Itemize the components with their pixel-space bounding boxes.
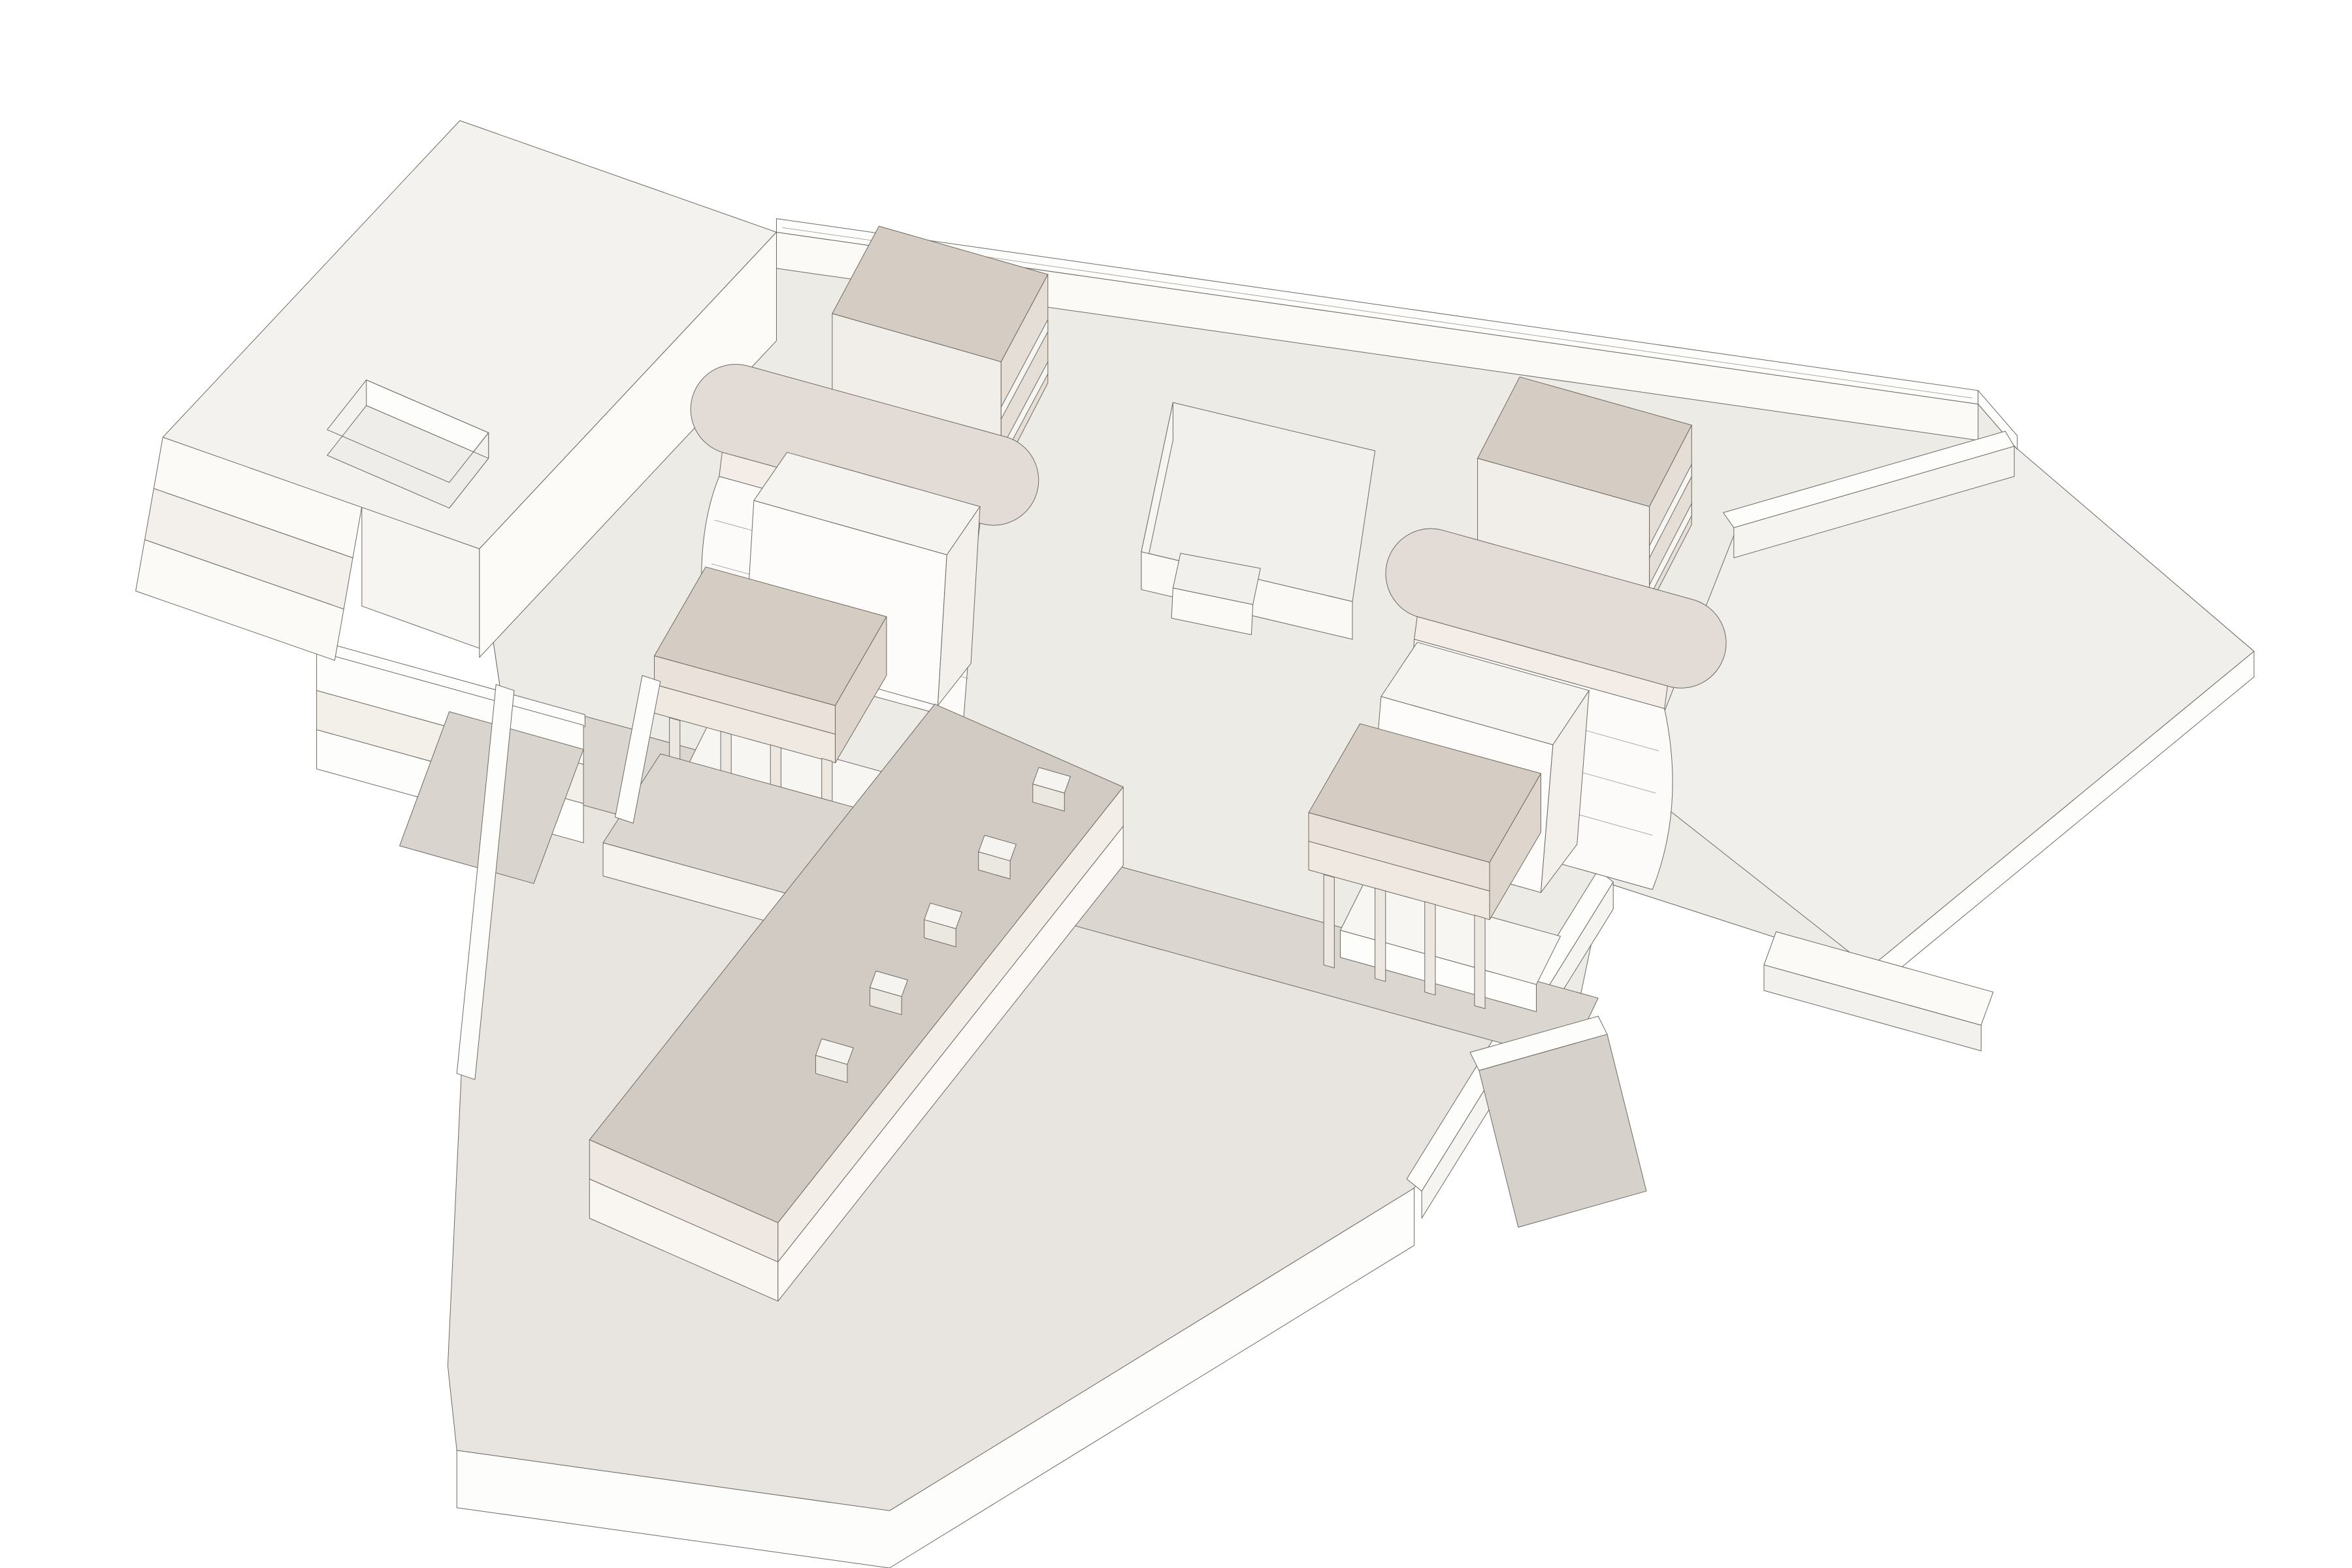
east-column-4 [1475,915,1485,1009]
site-model-drawing [0,0,2352,1568]
east-column-1 [1324,874,1334,968]
page-background [0,0,2352,1568]
ramp [1479,1034,1646,1227]
east-column-3 [1425,902,1435,995]
east-column-2 [1375,888,1386,981]
